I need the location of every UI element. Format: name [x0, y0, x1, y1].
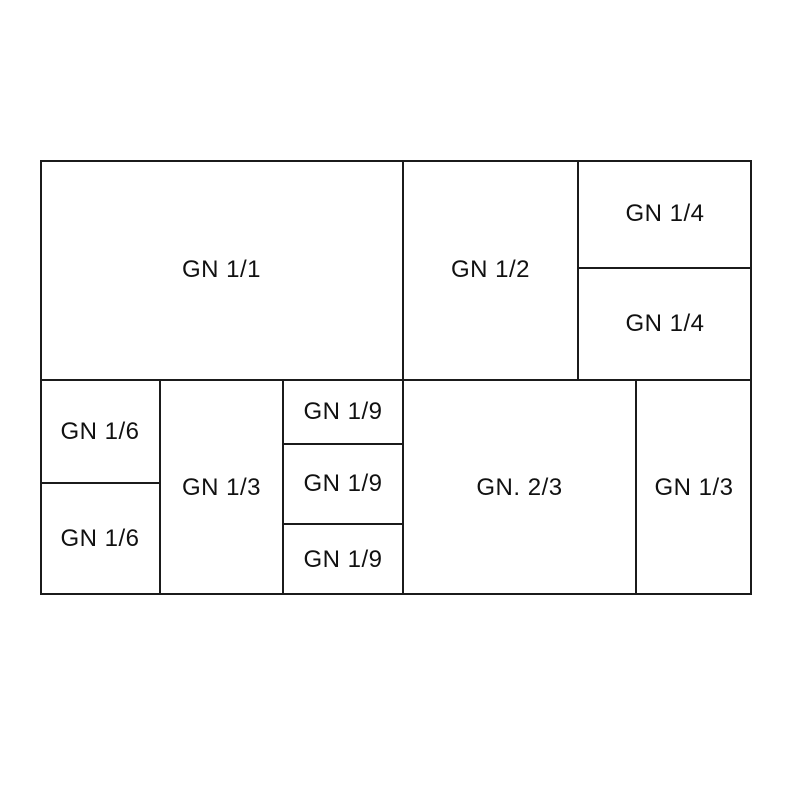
outer-border-left [40, 160, 42, 595]
cell-label: GN 1/6 [60, 418, 139, 446]
cell-label: GN 1/3 [182, 474, 261, 502]
cell-gn-1-9-bottom: GN 1/9 [283, 524, 403, 595]
divider-gn16-gn13 [159, 379, 161, 595]
cell-label: GN 1/9 [303, 470, 382, 498]
divider-between-gn19-lower [282, 523, 404, 525]
cell-gn-1-6-top: GN 1/6 [40, 380, 160, 483]
cell-gn-2-3: GN. 2/3 [403, 380, 636, 595]
gastronorm-size-diagram: GN 1/1 GN 1/2 GN 1/4 GN 1/4 GN 1/6 GN 1/… [40, 160, 752, 595]
outer-border-bottom [40, 593, 752, 595]
cell-gn-1-3-left: GN 1/3 [160, 380, 283, 595]
divider-gn13-gn19 [282, 379, 284, 595]
page: { "diagram": { "line_color": "#1b1b1b", … [0, 0, 800, 800]
cell-gn-1-9-middle: GN 1/9 [283, 444, 403, 524]
cell-label: GN 1/4 [625, 200, 704, 228]
divider-horizontal-main [40, 379, 752, 381]
cell-gn-1-4-bottom: GN 1/4 [578, 268, 752, 380]
divider-vertical-main [402, 160, 404, 595]
cell-label: GN. 2/3 [476, 474, 562, 502]
outer-border-top [40, 160, 752, 162]
divider-between-gn16 [40, 482, 161, 484]
cell-label: GN 1/1 [182, 256, 261, 284]
cell-gn-1-3-right: GN 1/3 [636, 380, 752, 595]
cell-label: GN 1/3 [654, 474, 733, 502]
cell-label: GN 1/2 [451, 256, 530, 284]
cell-label: GN 1/4 [625, 310, 704, 338]
outer-border-right [750, 160, 752, 595]
cell-label: GN 1/6 [60, 525, 139, 553]
divider-between-gn19-upper [282, 443, 404, 445]
cell-gn-1-9-top: GN 1/9 [283, 380, 403, 444]
divider-gn23-gn13 [635, 379, 637, 595]
cell-label: GN 1/9 [303, 398, 382, 426]
cell-gn-1-6-bottom: GN 1/6 [40, 483, 160, 595]
cell-gn-1-1: GN 1/1 [40, 160, 403, 380]
cell-gn-1-2: GN 1/2 [403, 160, 578, 380]
cell-label: GN 1/9 [303, 546, 382, 574]
divider-between-gn14 [577, 267, 752, 269]
cell-gn-1-4-top: GN 1/4 [578, 160, 752, 268]
divider-gn12-gn14 [577, 160, 579, 380]
